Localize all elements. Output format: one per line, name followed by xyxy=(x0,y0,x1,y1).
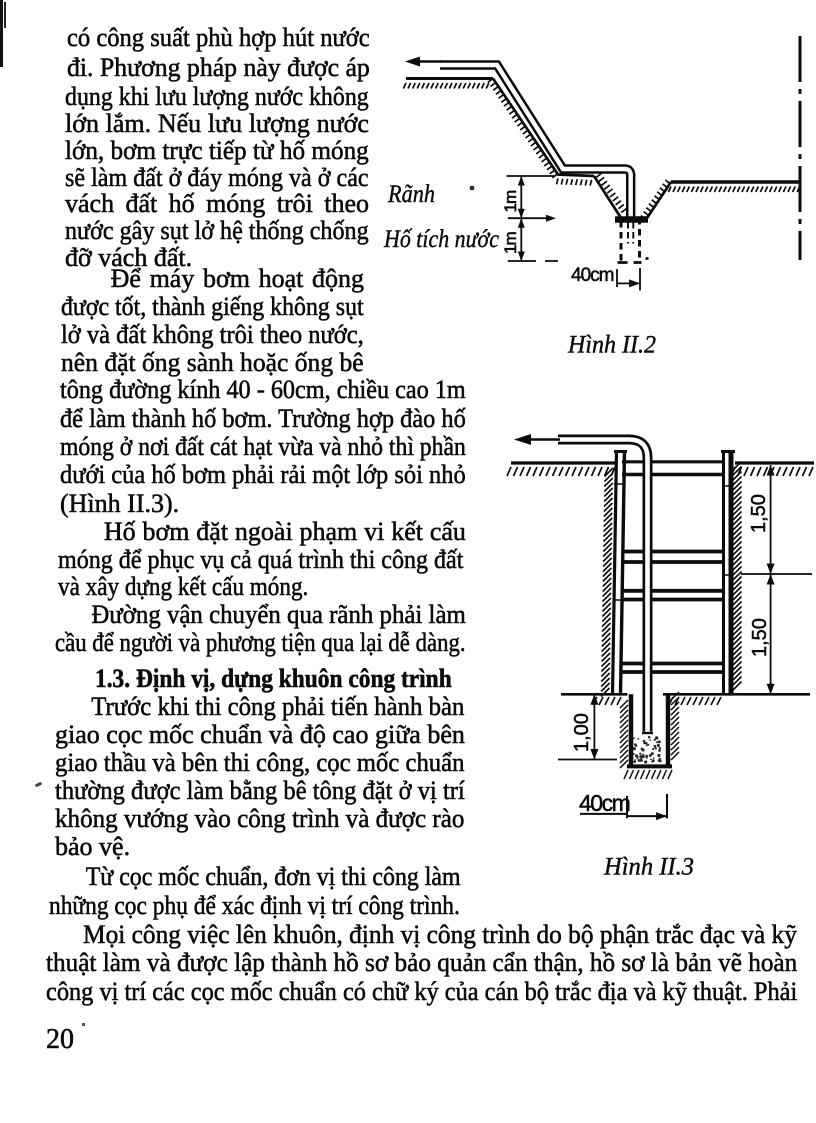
svg-text:40cm: 40cm xyxy=(571,265,614,286)
svg-text:1m: 1m xyxy=(501,190,520,212)
svg-text:Rãnh: Rãnh xyxy=(387,181,435,208)
svg-text:1,00: 1,00 xyxy=(571,713,593,752)
svg-text:Hình II.2: Hình II.2 xyxy=(567,332,656,359)
svg-text:Hình II.3: Hình II.3 xyxy=(603,854,694,881)
svg-text:1,50: 1,50 xyxy=(748,494,770,533)
svg-text:Hố tích nước: Hố tích nước xyxy=(383,226,499,253)
svg-text:1,50: 1,50 xyxy=(749,618,771,657)
svg-text:1m: 1m xyxy=(501,232,520,254)
svg-text:40cm: 40cm xyxy=(579,790,630,816)
